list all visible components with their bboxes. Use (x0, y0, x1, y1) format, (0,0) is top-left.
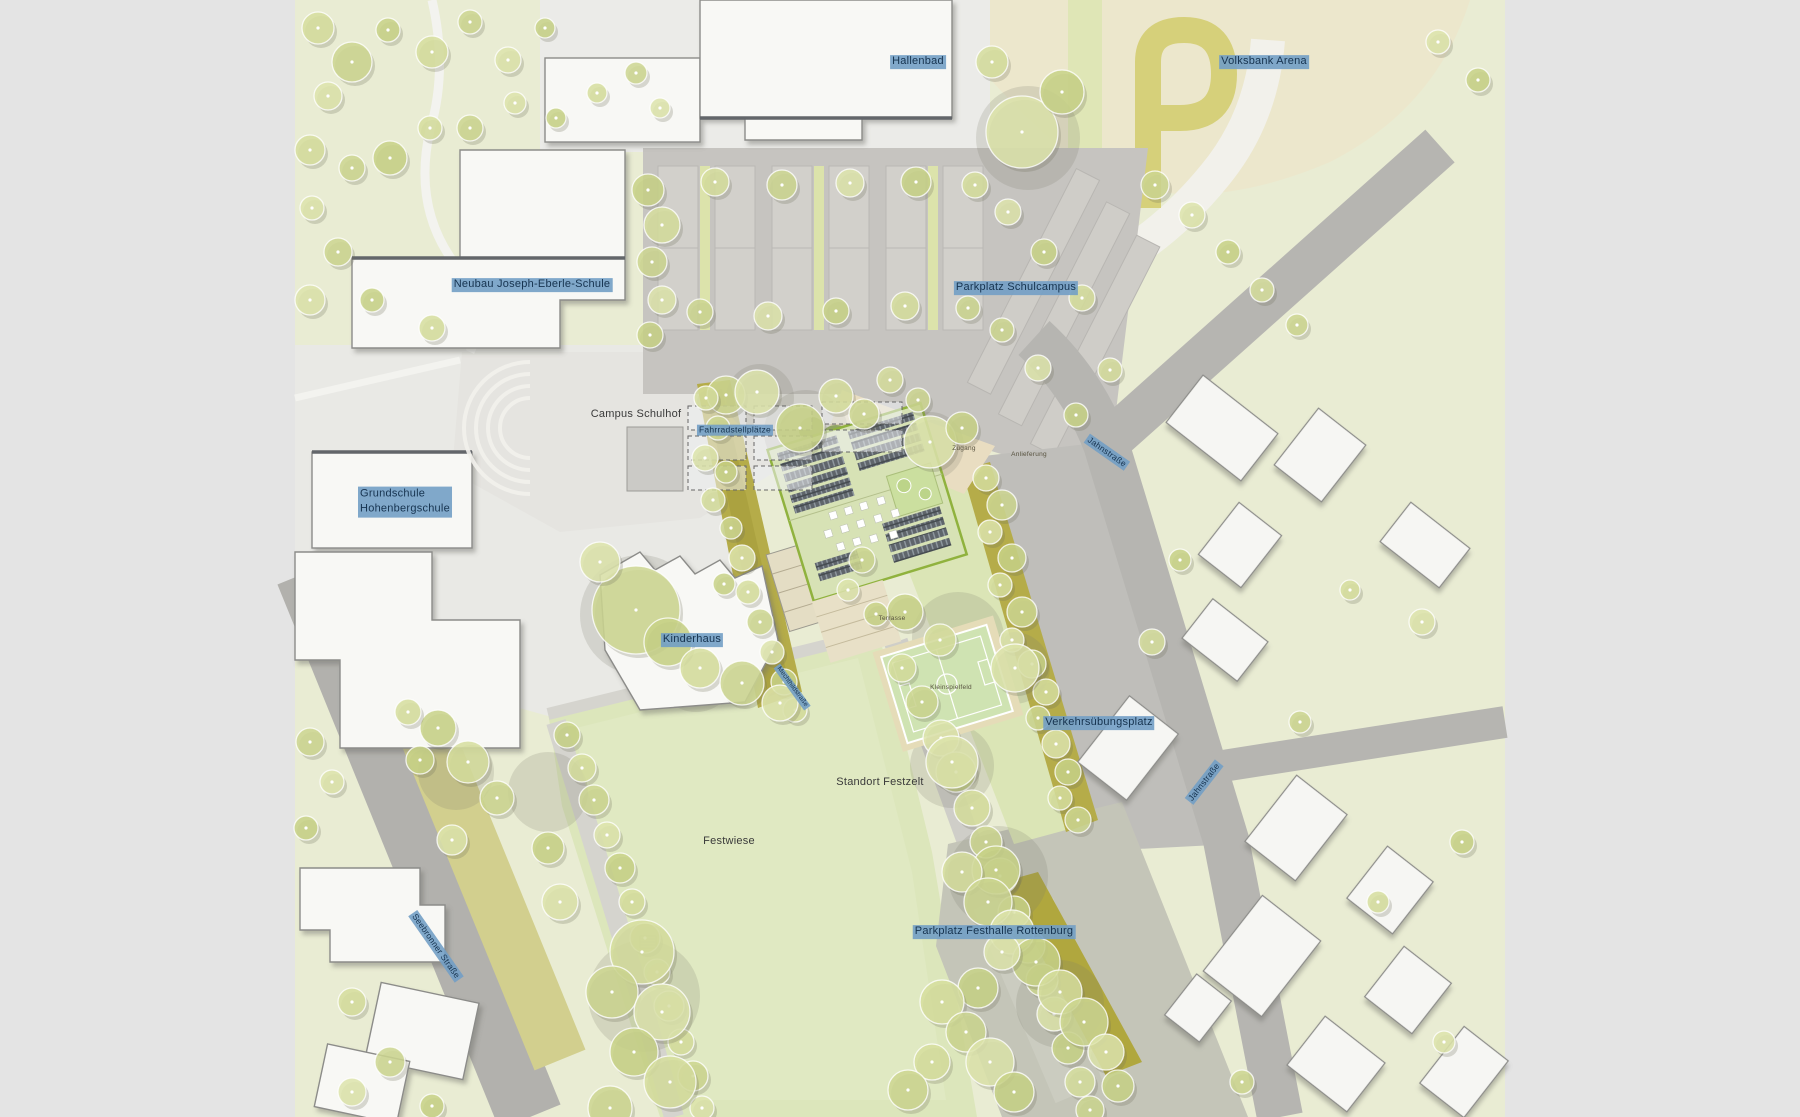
site-plan-map (0, 0, 1800, 1117)
building-grundschule-hohenbergschule (312, 452, 472, 548)
site-plan-viewport: Hallenbad Volksbank Arena Neubau Joseph-… (0, 0, 1800, 1117)
building-schulhof-pavilion (627, 427, 683, 491)
building-hallenbad-west (545, 58, 700, 142)
